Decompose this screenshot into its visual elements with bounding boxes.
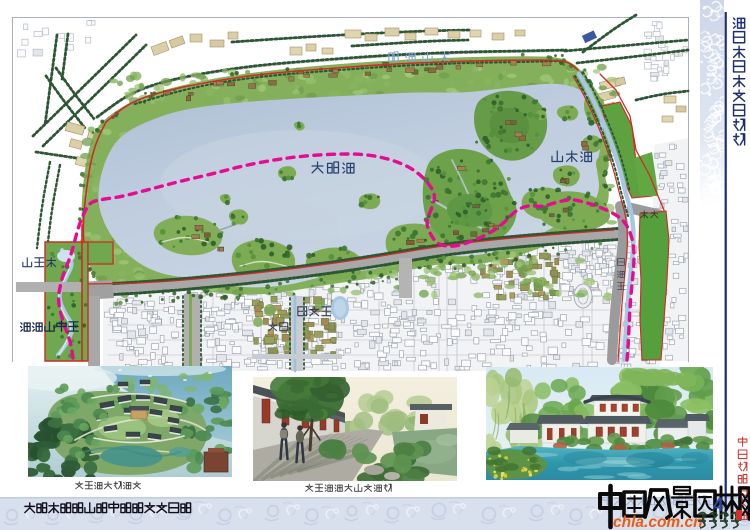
svg-text:chla.com.cn: chla.com.cn: [613, 514, 703, 530]
svg-text:4: 4: [713, 495, 724, 516]
